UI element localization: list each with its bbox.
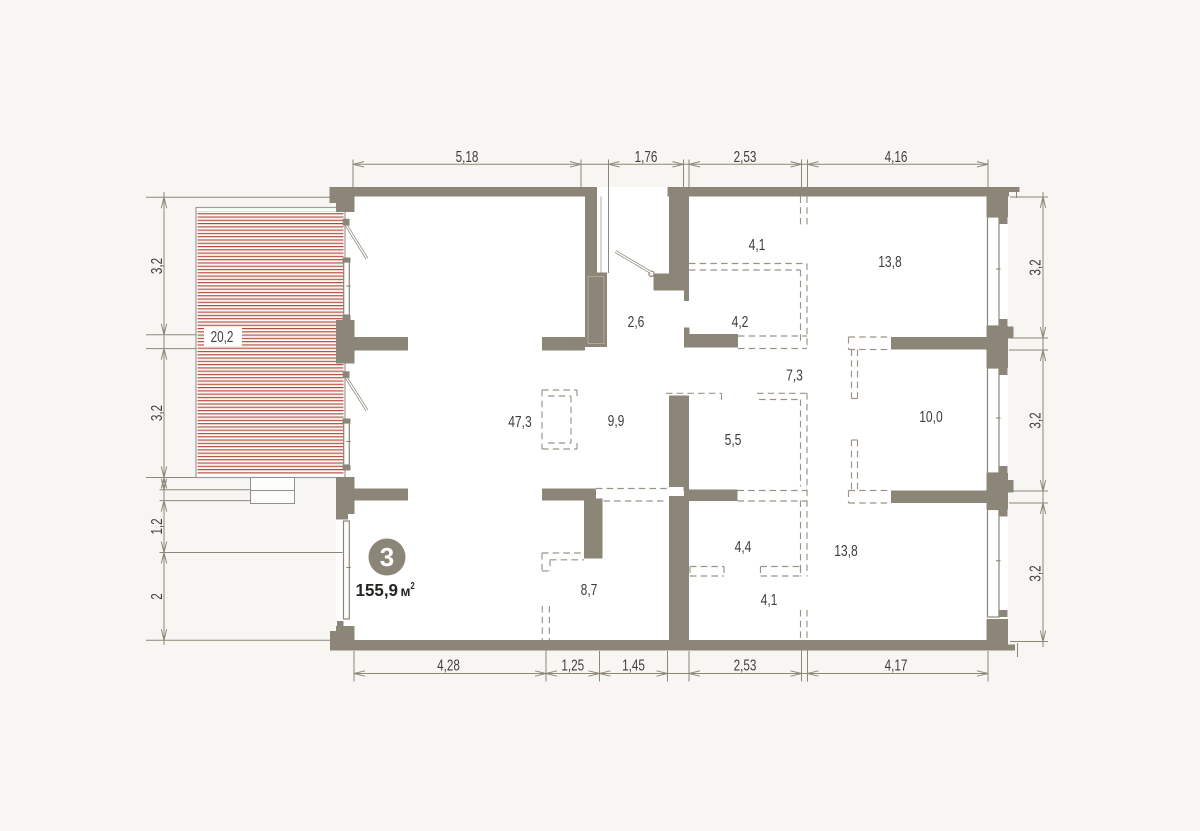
svg-text:5,5: 5,5 xyxy=(725,432,742,449)
svg-text:13,8: 13,8 xyxy=(834,543,858,560)
svg-text:1,2: 1,2 xyxy=(149,518,166,534)
svg-text:1,45: 1,45 xyxy=(622,658,645,675)
svg-text:3,2: 3,2 xyxy=(149,405,166,421)
svg-text:5,18: 5,18 xyxy=(456,149,479,166)
svg-text:9,9: 9,9 xyxy=(608,413,625,430)
svg-text:13,8: 13,8 xyxy=(878,254,902,271)
svg-text:2: 2 xyxy=(411,581,416,592)
svg-text:3,2: 3,2 xyxy=(1028,412,1045,428)
svg-text:4,28: 4,28 xyxy=(437,658,460,675)
svg-text:20,2: 20,2 xyxy=(211,329,234,346)
svg-text:155,9: 155,9 xyxy=(356,580,399,600)
svg-text:4,1: 4,1 xyxy=(749,237,766,254)
svg-text:4,17: 4,17 xyxy=(885,658,908,675)
svg-text:4,2: 4,2 xyxy=(732,314,749,331)
svg-text:3: 3 xyxy=(380,542,394,572)
svg-text:2: 2 xyxy=(149,593,166,600)
svg-text:м: м xyxy=(401,584,411,599)
svg-text:2,53: 2,53 xyxy=(734,149,757,166)
svg-text:2,6: 2,6 xyxy=(628,314,645,331)
svg-text:3,2: 3,2 xyxy=(149,258,166,274)
svg-text:3,2: 3,2 xyxy=(1028,565,1045,581)
svg-text:1,76: 1,76 xyxy=(635,149,658,166)
svg-text:7,3: 7,3 xyxy=(786,368,803,385)
svg-text:4,1: 4,1 xyxy=(761,592,778,609)
svg-text:47,3: 47,3 xyxy=(508,414,532,431)
svg-text:1,25: 1,25 xyxy=(561,658,584,675)
svg-text:4,16: 4,16 xyxy=(885,149,908,166)
svg-text:3,2: 3,2 xyxy=(1028,259,1045,275)
svg-text:8,7: 8,7 xyxy=(581,582,598,599)
svg-text:2,53: 2,53 xyxy=(734,658,757,675)
svg-text:4,4: 4,4 xyxy=(735,539,752,556)
svg-text:10,0: 10,0 xyxy=(919,409,943,426)
